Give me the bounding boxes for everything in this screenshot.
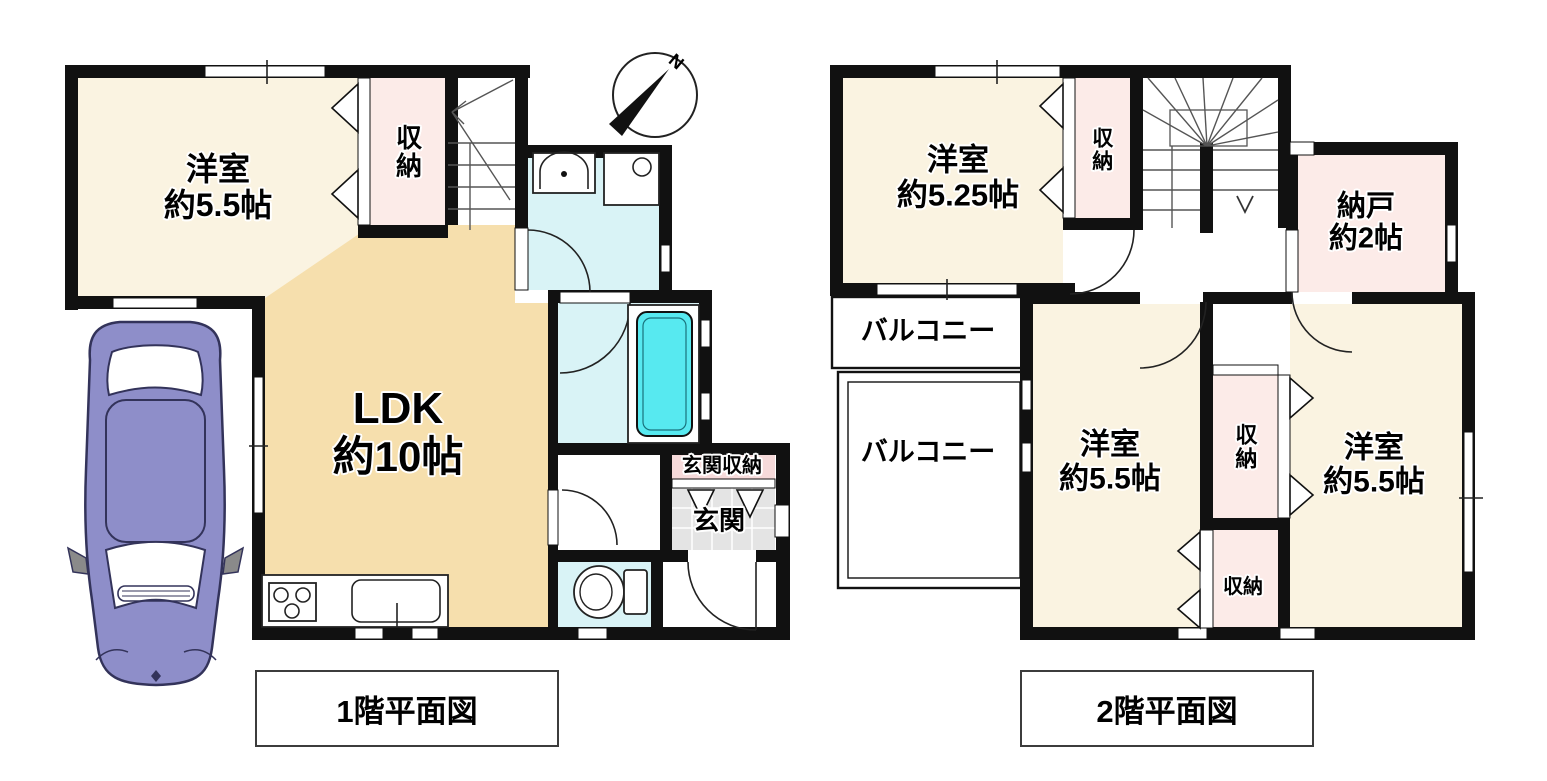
room-size: 約2帖 <box>1329 223 1403 255</box>
room-label-western-room-525: 洋室 約5.25帖 <box>897 143 1019 212</box>
room-size: 約10帖 <box>333 433 464 480</box>
kitchen-sink <box>352 580 440 622</box>
floorplan-canvas: N 洋室 約5.5帖 収納 LDK 約10帖 玄関収納 玄関 洋室 約5.25帖… <box>0 0 1547 781</box>
staircase-1f <box>448 80 515 230</box>
toilet <box>574 566 647 618</box>
room-label-closet-low-2f: 収納 <box>1223 576 1263 598</box>
stove <box>269 583 316 621</box>
compass-icon <box>609 53 697 137</box>
room-name: 納戸 <box>1329 191 1403 223</box>
room-label-closet-top-2f: 収納 <box>1089 127 1113 173</box>
floor1-caption-box: 1階平面図 <box>255 670 559 747</box>
room-size: 約5.5帖 <box>164 188 273 224</box>
room-name: LDK <box>333 384 464 433</box>
room-size: 約5.25帖 <box>897 178 1019 213</box>
room-size: 約5.5帖 <box>1323 465 1425 499</box>
room-label-ldk: LDK 約10帖 <box>333 384 464 480</box>
floor1-caption: 1階平面図 <box>336 686 477 731</box>
room-name: 洋室 <box>164 152 273 188</box>
room-label-entrance-storage: 玄関収納 <box>682 455 762 477</box>
room-label-balcony-upper: バルコニー <box>861 316 995 346</box>
car-mirror-right <box>223 548 243 574</box>
car-illustration <box>68 322 243 685</box>
room-label-storeroom: 納戸 約2帖 <box>1329 191 1403 256</box>
floor2-caption-box: 2階平面図 <box>1020 670 1314 747</box>
kitchen-counter <box>262 575 448 628</box>
room-name: 洋室 <box>1059 428 1161 462</box>
floor2-caption: 2階平面図 <box>1096 686 1237 731</box>
room-label-western-room-se: 洋室 約5.5帖 <box>1323 431 1425 498</box>
room-label-balcony-lower: バルコニー <box>861 437 995 467</box>
room-label-entrance: 玄関 <box>693 506 745 535</box>
stair-down-arrow <box>1237 196 1253 212</box>
room-name: 洋室 <box>1323 431 1425 465</box>
bathtub <box>628 305 699 443</box>
car-mirror-left <box>68 548 88 574</box>
room-size: 約5.5帖 <box>1059 462 1161 496</box>
room-label-closet-mid-2f: 収納 <box>1232 423 1257 471</box>
floorplan-drawing <box>0 0 1547 781</box>
washing-machine-pan <box>604 153 659 205</box>
room-label-closet-1f: 収納 <box>392 124 421 180</box>
room-name: 洋室 <box>897 143 1019 178</box>
room-label-western-room-1f: 洋室 約5.5帖 <box>164 152 273 224</box>
room-label-western-room-sw: 洋室 約5.5帖 <box>1059 428 1161 495</box>
